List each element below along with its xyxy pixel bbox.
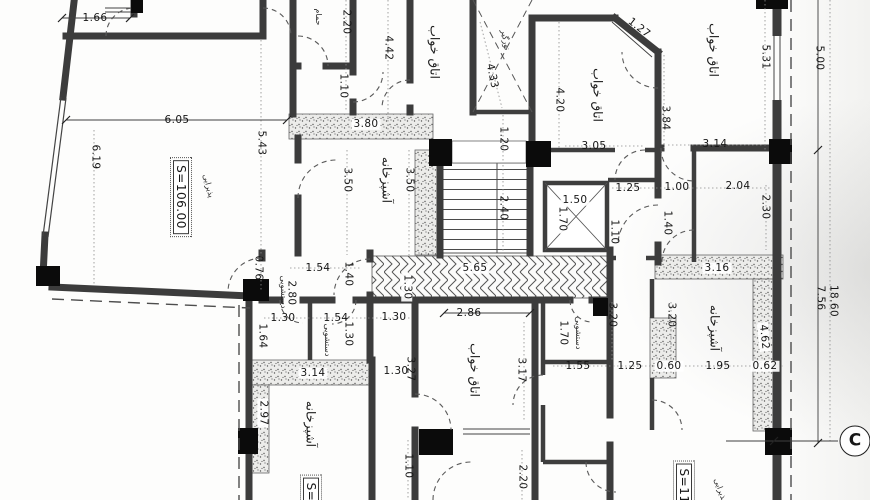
main-walls (43, 0, 777, 500)
light-well (473, 0, 532, 112)
floor-plan-drawing (0, 0, 870, 500)
elevator-shaft (545, 183, 607, 250)
floor-plan-canvas: 1.66حمام2.204.42اتاق خوابنورگیر4.331.27ا… (0, 0, 870, 500)
corridor-floor-hatch (372, 256, 608, 298)
door-arcs (106, 8, 694, 500)
staircase (443, 141, 530, 253)
